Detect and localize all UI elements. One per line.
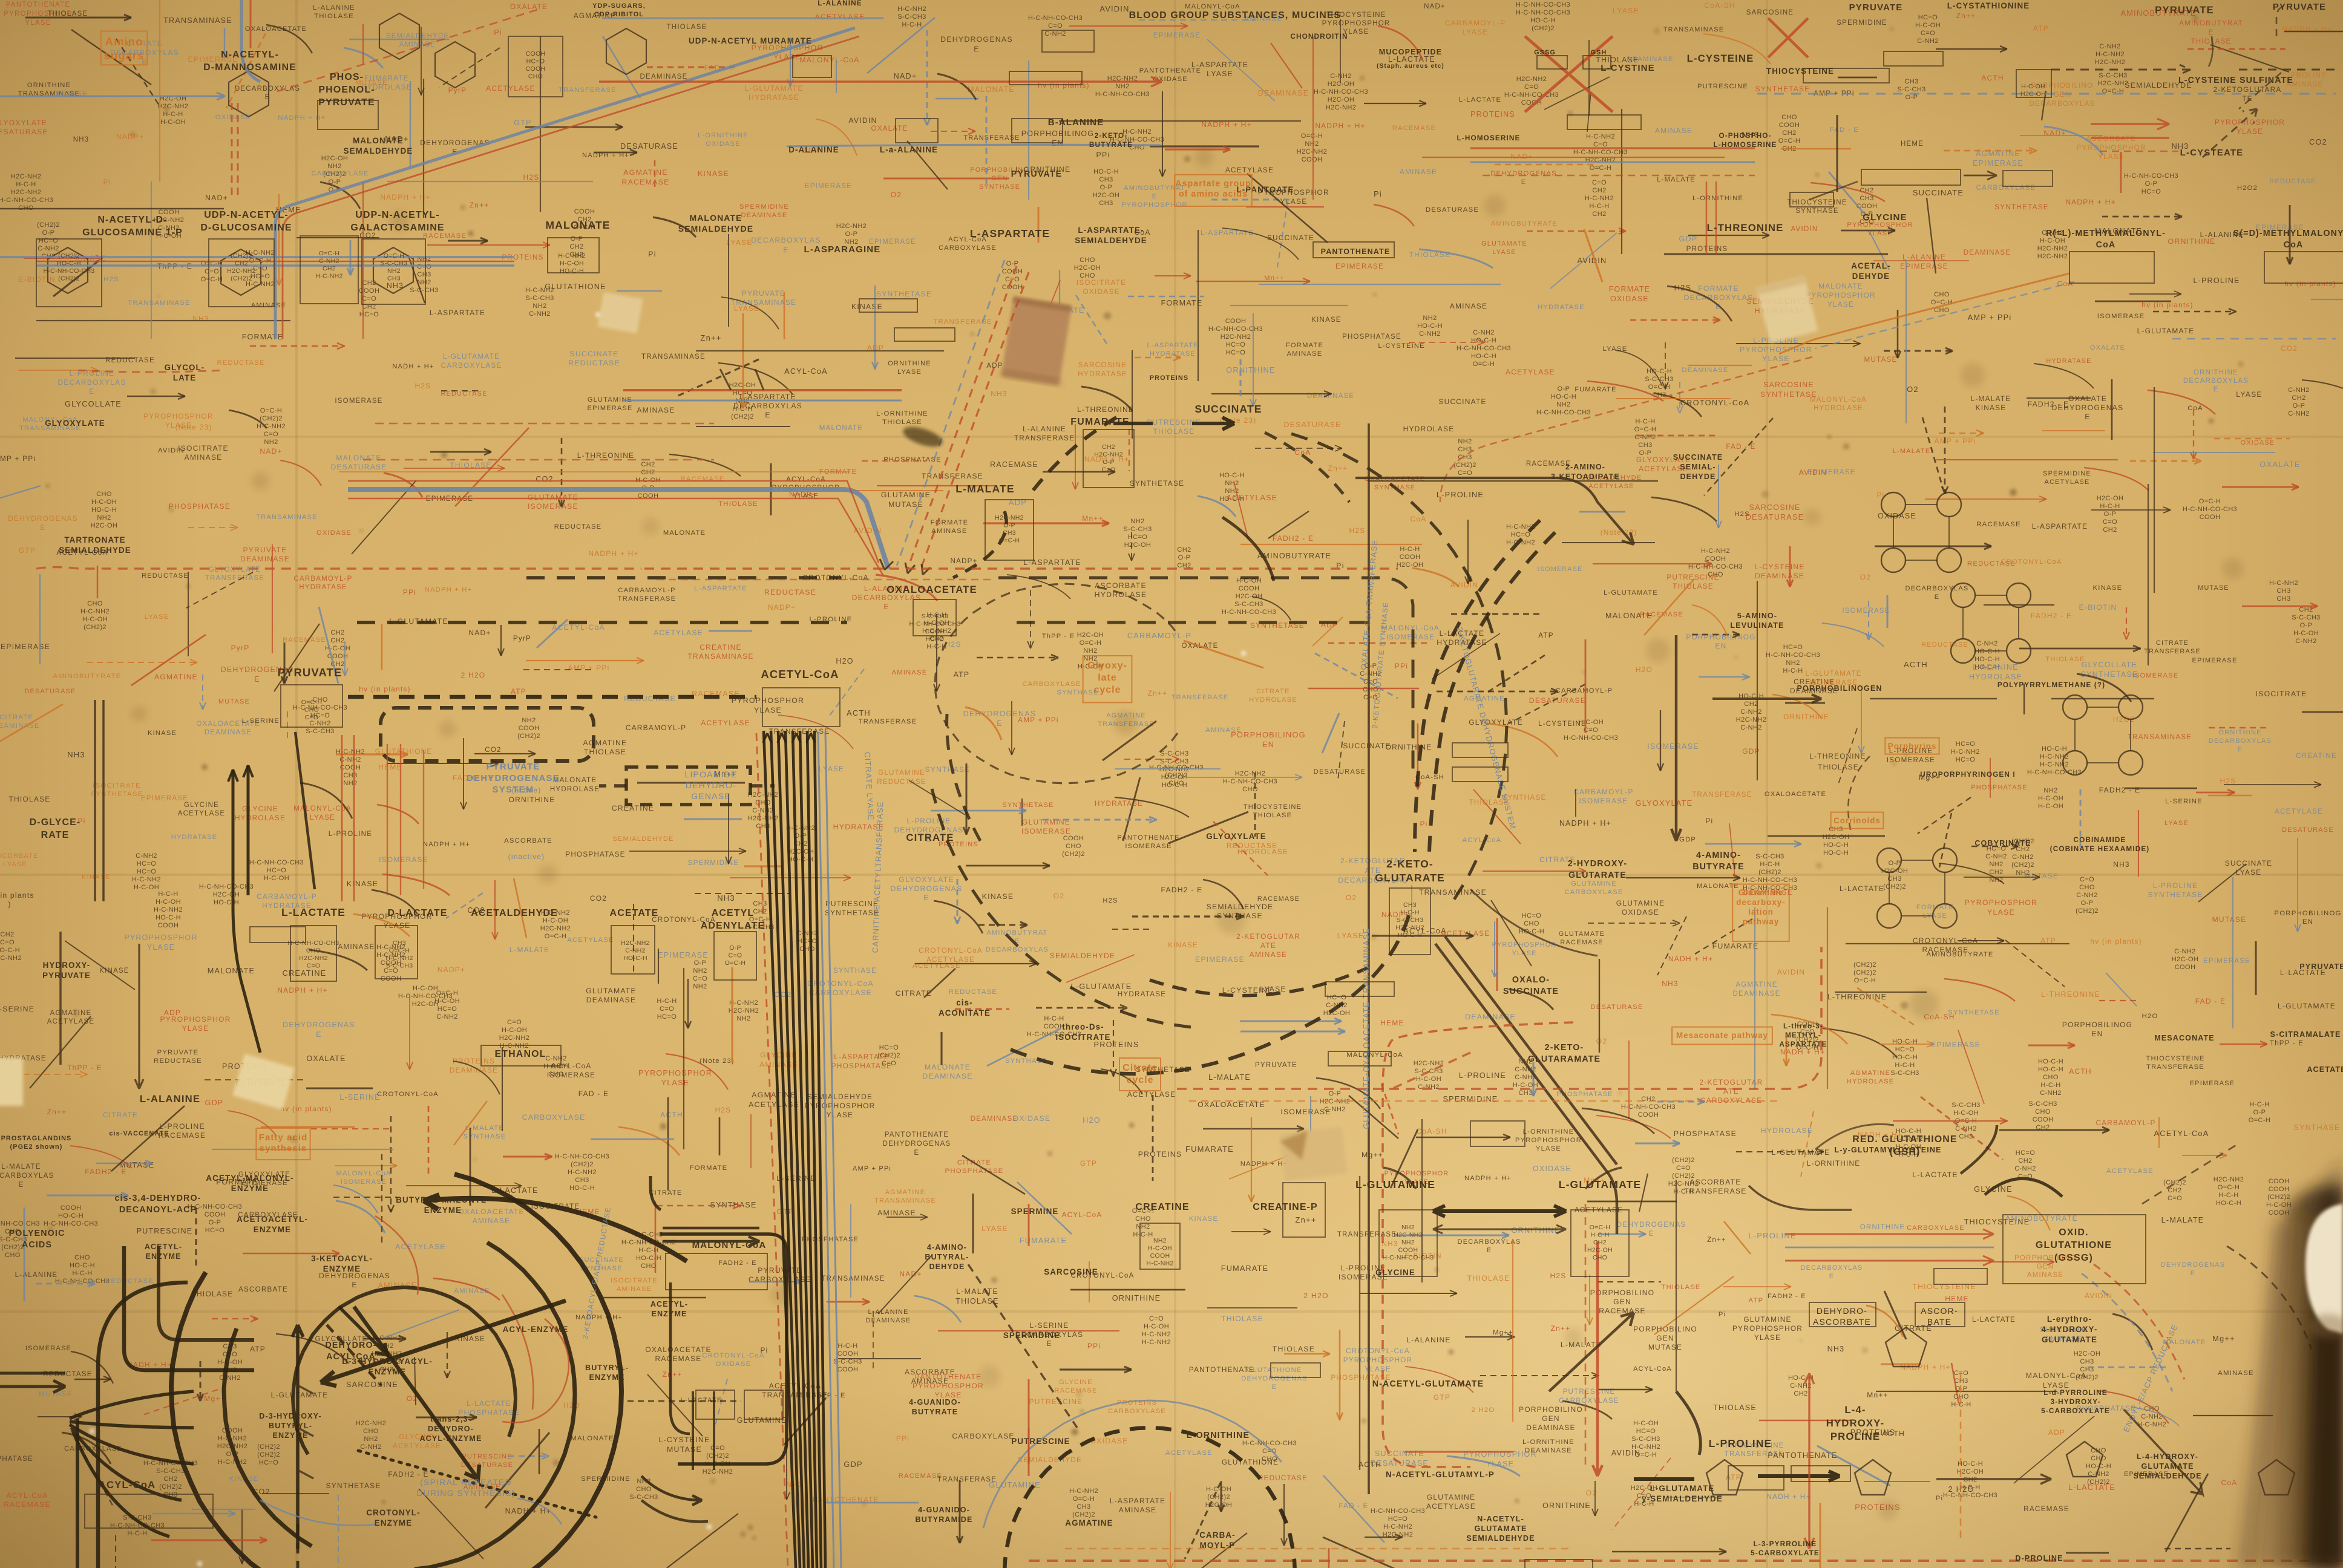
svg-text:C-NH2: C-NH2: [1044, 30, 1066, 38]
svg-text:ISOMERASE: ISOMERASE: [2097, 313, 2145, 320]
svg-text:H-C-H: H-C-H: [2249, 1101, 2269, 1108]
svg-text:NAD+: NAD+: [894, 72, 917, 80]
svg-text:THIOLASE: THIOLASE: [1467, 1274, 1510, 1282]
svg-text:CARBAMOYL-P: CARBAMOYL-P: [2096, 1119, 2155, 1127]
svg-text:H-C-OH: H-C-OH: [1953, 1109, 1979, 1117]
svg-text:TRANSFERASE: TRANSFERASE: [205, 575, 264, 582]
svg-text:POLYPYRRYLMETHANE (?): POLYPYRRYLMETHANE (?): [1997, 681, 2105, 689]
svg-text:CHO: CHO: [1593, 1254, 1607, 1261]
svg-text:GLUTAMATE: GLUTAMATE: [1474, 1524, 1527, 1533]
svg-text:S(=D)-METHYLMALONYL-: S(=D)-METHYLMALONYL-: [2233, 229, 2343, 238]
svg-text:ACETYL-CoA: ACETYL-CoA: [2154, 1129, 2209, 1138]
svg-text:LYASE: LYASE: [1207, 70, 1233, 78]
svg-text:L-PROLINE: L-PROLINE: [329, 830, 373, 838]
svg-text:HO-C-H: HO-C-H: [91, 506, 117, 514]
svg-text:MALONATE: MALONATE: [571, 1435, 614, 1442]
svg-text:L-PROLINE: L-PROLINE: [1709, 1437, 1772, 1449]
svg-text:PORPHOBILINOGEN: PORPHOBILINOGEN: [1797, 684, 1882, 693]
svg-text:EN: EN: [2091, 1030, 2103, 1038]
svg-text:C-NH2: C-NH2: [319, 258, 339, 265]
svg-text:L-GLUTAMATE: L-GLUTAMATE: [1559, 1178, 1642, 1191]
svg-text:GLUTAMATE: GLUTAMATE: [1559, 930, 1605, 938]
svg-text:GLYOXYLATE: GLYOXYLATE: [1469, 718, 1523, 727]
svg-text:TRANSFERASE: TRANSFERASE: [1337, 1231, 1397, 1238]
svg-text:PPi: PPi: [1096, 151, 1110, 159]
svg-text:PYROPHOSPHOR: PYROPHOSPHOR: [124, 933, 197, 942]
svg-text:MALONYL-CoA: MALONYL-CoA: [1381, 624, 1440, 632]
svg-text:C=O: C=O: [1593, 141, 1608, 148]
svg-text:NH3: NH3: [2113, 860, 2129, 869]
svg-text:O2: O2: [1860, 573, 1871, 581]
svg-text:PYRUVATE: PYRUVATE: [742, 289, 785, 298]
svg-text:ACETYLASE: ACETYLASE: [47, 1018, 95, 1025]
svg-text:S-C-CH3: S-C-CH3: [386, 962, 413, 970]
svg-text:2-KETOGLUTAR: 2-KETOGLUTAR: [1236, 932, 1300, 941]
svg-text:O-P: O-P: [571, 235, 583, 243]
svg-text:GTP: GTP: [777, 1207, 794, 1216]
svg-text:O=C-H: O=C-H: [2199, 498, 2221, 505]
svg-text:CoA-SH: CoA-SH: [1704, 1, 1735, 10]
svg-text:(Note 23): (Note 23): [175, 423, 212, 431]
svg-text:L-ASPARAGINE: L-ASPARAGINE: [804, 244, 881, 255]
svg-text:ACETYLASE: ACETYLASE: [567, 936, 614, 944]
svg-text:C-NH2: C-NH2: [136, 852, 157, 860]
svg-text:PyrP: PyrP: [231, 644, 250, 652]
svg-text:H-C-NH-CO-CH3: H-C-NH-CO-CH3: [1208, 325, 1263, 333]
svg-text:H-C-OH: H-C-OH: [2021, 83, 2045, 90]
svg-text:H-C-H: H-C-H: [127, 1530, 147, 1537]
svg-text:KINASE: KINASE: [2093, 584, 2123, 592]
svg-text:H2S: H2S: [1349, 526, 1366, 535]
svg-text:L-THREONINE: L-THREONINE: [1827, 993, 1887, 1001]
svg-text:COOH: COOH: [925, 628, 945, 635]
svg-text:Pi: Pi: [1936, 1495, 1943, 1502]
svg-text:THIOLASE: THIOLASE: [718, 500, 758, 508]
svg-text:E: E: [19, 1181, 24, 1189]
svg-text:H-C-NH-CO-CH3: H-C-NH-CO-CH3: [1314, 88, 1368, 96]
svg-text:L-SERINE: L-SERINE: [2165, 798, 2203, 805]
svg-text:NH2: NH2: [1115, 83, 1129, 90]
svg-text:CH2: CH2: [641, 461, 655, 468]
svg-text:SEMIALDEHYDE: SEMIALDEHYDE: [678, 224, 753, 234]
svg-text:Aspartate group: Aspartate group: [1175, 179, 1251, 189]
svg-text:O-P: O-P: [1906, 94, 1918, 101]
svg-text:H2C-NH2: H2C-NH2: [227, 267, 256, 275]
svg-text:COOH: COOH: [1150, 1252, 1170, 1259]
svg-text:OXIDASE: OXIDASE: [706, 140, 740, 148]
svg-text:C=O: C=O: [362, 295, 376, 302]
svg-text:C-NH2: C-NH2: [529, 310, 551, 318]
svg-text:H-C-H: H-C-H: [2218, 1192, 2238, 1199]
svg-text:NADPH + H+: NADPH + H+: [277, 986, 327, 995]
svg-text:H-C-NH-CO-CH3: H-C-NH-CO-CH3: [1516, 1, 1570, 8]
svg-text:C=O: C=O: [1676, 1165, 1691, 1172]
svg-text:ORNITHINE: ORNITHINE: [1542, 1501, 1591, 1510]
svg-text:C-NH2: C-NH2: [2099, 43, 2121, 50]
svg-text:ACETYL-: ACETYL-: [650, 1300, 688, 1308]
svg-text:REDUCTASE: REDUCTASE: [568, 359, 620, 367]
svg-text:L-GLUTAMATE: L-GLUTAMATE: [2278, 1002, 2336, 1010]
svg-text:O=C-H: O=C-H: [1301, 132, 1323, 140]
svg-text:synthesis: synthesis: [260, 1143, 307, 1154]
svg-text:EN: EN: [2302, 918, 2313, 926]
svg-text:PUTRESCINE: PUTRESCINE: [1029, 1397, 1083, 1406]
svg-text:L-GLUTAMATE: L-GLUTAMATE: [1650, 1484, 1715, 1493]
svg-text:PYRUVATE: PYRUVATE: [1011, 169, 1063, 179]
svg-text:HYDRATASE: HYDRATASE: [299, 584, 347, 591]
svg-text:TRANSFERASE: TRANSFERASE: [618, 595, 677, 603]
svg-text:FADH2 - E: FADH2 - E: [1768, 1293, 1806, 1300]
svg-text:S-C-CH3: S-C-CH3: [1160, 750, 1188, 757]
svg-text:2-KETO-: 2-KETO-: [1095, 131, 1128, 140]
svg-text:THIOLASE: THIOLASE: [1153, 427, 1195, 436]
svg-text:H-C-NH-CO-CH3: H-C-NH-CO-CH3: [288, 939, 339, 947]
svg-text:O2: O2: [1596, 1037, 1607, 1045]
svg-text:DECARBOXYLAS: DECARBOXYLAS: [57, 378, 126, 387]
svg-text:COOH: COOH: [2175, 964, 2196, 971]
svg-text:CITRATE: CITRATE: [1256, 688, 1289, 695]
svg-text:RED. GLUTATHIONE: RED. GLUTATHIONE: [1852, 1134, 1957, 1145]
svg-text:H2C-OH: H2C-OH: [1077, 632, 1104, 639]
svg-text:HC=O: HC=O: [1226, 349, 1246, 356]
svg-text:GLYCINE: GLYCINE: [1375, 1268, 1415, 1277]
svg-text:H2C-NH2: H2C-NH2: [836, 223, 867, 230]
svg-text:EPIMERASE: EPIMERASE: [1973, 159, 2023, 168]
svg-text:CoA: CoA: [2284, 240, 2304, 250]
svg-text:REDUCTASE: REDUCTASE: [142, 572, 189, 580]
svg-text:L-ALANINE: L-ALANINE: [818, 0, 862, 7]
svg-text:ACETYLASE: ACETYLASE: [1588, 483, 1634, 490]
svg-text:COOH: COOH: [837, 1366, 859, 1373]
svg-text:DEHYDROGENAS: DEHYDROGENAS: [883, 1140, 951, 1148]
svg-text:Glutamate: Glutamate: [1738, 888, 1783, 897]
svg-text:CREATINE: CREATINE: [700, 643, 741, 652]
svg-text:NH2: NH2: [693, 967, 707, 975]
svg-text:DECARBOXYLAS: DECARBOXYLAS: [986, 946, 1049, 953]
svg-text:(CH2)2: (CH2)2: [159, 1483, 182, 1491]
svg-text:Mn++: Mn++: [1082, 514, 1104, 523]
svg-text:HO-C-H: HO-C-H: [2038, 1058, 2063, 1065]
svg-text:H-C-H: H-C-H: [1044, 1015, 1064, 1022]
svg-text:KINASE: KINASE: [698, 169, 729, 178]
svg-text:AMINASE: AMINASE: [251, 302, 286, 309]
svg-text:HO-C-H: HO-C-H: [57, 260, 81, 267]
svg-text:H-C-OH: H-C-OH: [134, 884, 159, 891]
svg-text:DEHYDROGENAS: DEHYDROGENAS: [2052, 403, 2124, 412]
svg-text:HC=O: HC=O: [1226, 341, 1246, 348]
svg-text:LYASE: LYASE: [3, 861, 27, 868]
svg-text:O-PHOSPHO-: O-PHOSPHO-: [1719, 131, 1771, 140]
svg-text:NH2: NH2: [1153, 1237, 1167, 1244]
svg-text:GLYCOLLATE: GLYCOLLATE: [2082, 661, 2138, 669]
svg-text:CARBOXYLASE: CARBOXYLASE: [522, 1113, 586, 1122]
svg-text:HO-C-H: HO-C-H: [2038, 1066, 2063, 1073]
svg-text:COBINAMIDE: COBINAMIDE: [2073, 835, 2126, 844]
svg-text:DEAMINASE: DEAMINASE: [1525, 1447, 1572, 1454]
svg-text:H-C-H: H-C-H: [2040, 1082, 2060, 1089]
svg-text:YLASE: YLASE: [1987, 908, 2015, 916]
svg-text:hv (in plants): hv (in plants): [2284, 279, 2336, 288]
svg-text:COOH: COOH: [340, 764, 361, 771]
svg-text:DECARBOXYLAS: DECARBOXYLAS: [235, 85, 300, 93]
svg-text:ThPP - E: ThPP - E: [67, 1063, 102, 1072]
svg-text:ACETYLASE: ACETYLASE: [1426, 1502, 1476, 1511]
svg-text:DEHYDROGENAS: DEHYDROGENAS: [2161, 1261, 2225, 1269]
svg-text:H2C-OH: H2C-OH: [1074, 264, 1101, 272]
svg-text:H-C-OH: H-C-OH: [1148, 1245, 1172, 1252]
svg-text:SYNTHETASE: SYNTHETASE: [1994, 203, 2049, 211]
svg-text:HYDROXY-: HYDROXY-: [43, 961, 91, 970]
svg-text:H2C-NH2: H2C-NH2: [1094, 451, 1123, 459]
svg-text:NH2: NH2: [2043, 787, 2057, 794]
svg-text:NH2: NH2: [364, 1436, 378, 1443]
svg-text:GTP: GTP: [1434, 1393, 1450, 1402]
svg-text:H2S: H2S: [945, 640, 961, 648]
svg-text:ISOCITRATE: ISOCITRATE: [93, 782, 141, 789]
svg-text:ORNITHINE: ORNITHINE: [1226, 365, 1276, 374]
svg-text:C=O: C=O: [1524, 83, 1539, 91]
svg-text:PYROPHOSPHOR: PYROPHOSPHOR: [1492, 941, 1557, 949]
svg-text:CARBOXYLASE: CARBOXYLASE: [1976, 185, 2036, 192]
svg-text:C=O: C=O: [1102, 466, 1116, 474]
svg-text:L-y-GLUTAMYLCYSTEINE: L-y-GLUTAMYLCYSTEINE: [1834, 1146, 1941, 1154]
svg-text:MALONYL-CoA: MALONYL-CoA: [1346, 1051, 1403, 1059]
svg-text:O-P: O-P: [1329, 1090, 1342, 1097]
svg-text:D-3-HYDROXY-: D-3-HYDROXY-: [259, 1412, 321, 1420]
svg-text:KINASE: KINASE: [1168, 942, 1198, 949]
svg-text:PYROPHOSPHOR: PYROPHOSPHOR: [804, 1102, 875, 1110]
svg-text:REDUCTASE: REDUCTASE: [154, 1057, 202, 1065]
svg-text:DECARBOXYLAS: DECARBOXYLAS: [0, 1172, 54, 1180]
svg-text:HYDRATASE: HYDRATASE: [1078, 370, 1127, 378]
svg-text:PUTRESCINE: PUTRESCINE: [1011, 1437, 1070, 1446]
svg-text:(CH2)2: (CH2)2: [571, 1161, 594, 1168]
svg-text:L-ORNITHINE: L-ORNITHINE: [1522, 1439, 1575, 1446]
svg-text:AMINASE: AMINASE: [892, 669, 928, 676]
svg-text:AVIDIN: AVIDIN: [1777, 968, 1805, 976]
svg-text:4-GUANIDO-: 4-GUANIDO-: [909, 1398, 961, 1406]
svg-text:C=O: C=O: [307, 962, 321, 970]
svg-text:L-LACTATE: L-LACTATE: [1459, 96, 1502, 103]
svg-text:PUTRESCINE: PUTRESCINE: [1697, 83, 1748, 90]
svg-text:ACETYLASE: ACETYLASE: [486, 84, 536, 93]
svg-text:ACYL-CoA: ACYL-CoA: [1633, 1365, 1672, 1373]
svg-text:S-C-CH3: S-C-CH3: [306, 728, 334, 735]
svg-text:NH2: NH2: [1989, 861, 2003, 868]
svg-text:D-PROLINE: D-PROLINE: [2015, 1554, 2063, 1563]
svg-text:H-C-OH: H-C-OH: [156, 898, 181, 906]
svg-text:ACETATE: ACETATE: [2307, 1065, 2343, 1074]
svg-text:H-C-H: H-C-H: [837, 1342, 857, 1350]
svg-text:(CH2)2: (CH2)2: [2011, 861, 2034, 869]
svg-text:ACETYLASE: ACETYLASE: [701, 719, 750, 727]
svg-text:N-ACETYL-GLUTAMYL-P: N-ACETYL-GLUTAMYL-P: [1386, 1470, 1495, 1479]
svg-text:H-C-NH-CO-CH3: H-C-NH-CO-CH3: [1222, 609, 1276, 616]
svg-text:3-KETOADIPATE: 3-KETOADIPATE: [1551, 472, 1620, 481]
svg-text:L-d-PYRROLINE: L-d-PYRROLINE: [2043, 1388, 2107, 1397]
svg-text:C=O: C=O: [693, 975, 707, 982]
svg-text:COOH: COOH: [205, 1211, 226, 1218]
svg-text:L-ASPARTATE-: L-ASPARTATE-: [1078, 226, 1144, 235]
svg-text:CH3: CH3: [1403, 901, 1417, 909]
svg-text:DECARBOXYLAS: DECARBOXYLAS: [1457, 1238, 1521, 1246]
svg-text:ISOMERASE: ISOMERASE: [528, 502, 578, 511]
svg-text:ACETYLASE: ACETYLASE: [395, 1243, 446, 1251]
svg-text:L-ASPARTATE: L-ASPARTATE: [1191, 60, 1248, 69]
svg-text:ISOMERASE: ISOMERASE: [1579, 797, 1628, 805]
svg-text:THIOLASE: THIOLASE: [1713, 1403, 1757, 1412]
svg-text:H2O: H2O: [836, 657, 853, 665]
svg-text:H-C-H: H-C-H: [72, 1270, 92, 1277]
svg-text:DESATURASE: DESATURASE: [24, 688, 76, 695]
svg-text:(active): (active): [512, 786, 542, 794]
svg-text:GLUTAMINE: GLUTAMINE: [1743, 1315, 1791, 1324]
svg-text:H-C-NH2: H-C-NH2: [1383, 1523, 1412, 1530]
svg-text:NH3: NH3: [67, 750, 85, 759]
svg-text:ENZYME: ENZYME: [231, 1184, 269, 1193]
svg-text:Zn++: Zn++: [47, 1108, 67, 1116]
svg-text:CoA-SH: CoA-SH: [1416, 1127, 1447, 1135]
svg-text:NADP+: NADP+: [768, 603, 796, 612]
svg-text:4-HYDROXY-: 4-HYDROXY-: [2042, 1325, 2098, 1334]
svg-text:O2: O2: [1907, 385, 1918, 394]
svg-text:GLUTATHIONE: GLUTATHIONE: [1247, 1367, 1302, 1374]
svg-text:AMINASE: AMINASE: [759, 1060, 798, 1069]
svg-text:ISOMERASE: ISOMERASE: [547, 1071, 595, 1079]
svg-text:ASCORBATE: ASCORBATE: [1813, 1317, 1871, 1327]
svg-text:AGMATINE: AGMATINE: [1065, 1518, 1113, 1527]
svg-text:RACEMASE: RACEMASE: [2023, 1504, 2069, 1513]
svg-text:DEHYDROGENAS: DEHYDROGENAS: [1241, 1375, 1308, 1382]
svg-text:EPIMERASE: EPIMERASE: [1931, 1040, 1981, 1049]
svg-text:COOH: COOH: [574, 208, 595, 215]
svg-text:REDUCTASE: REDUCTASE: [949, 988, 997, 996]
svg-text:L-PROLINE: L-PROLINE: [2153, 881, 2198, 890]
svg-text:S-C-CH3: S-C-CH3: [1755, 853, 1784, 860]
svg-text:GDP: GDP: [205, 1099, 224, 1107]
svg-text:SARCOSINE: SARCOSINE: [346, 1380, 398, 1389]
svg-text:HO-C-H: HO-C-H: [214, 899, 239, 906]
svg-text:CH3: CH3: [2080, 1358, 2094, 1365]
svg-text:COOH: COOH: [526, 50, 546, 57]
svg-text:H-C-NH2: H-C-NH2: [897, 5, 926, 13]
svg-text:H-C-NH2: H-C-NH2: [1585, 195, 1614, 202]
svg-text:(Note 23): (Note 23): [700, 1057, 735, 1065]
svg-text:YLASE: YLASE: [182, 1024, 209, 1033]
svg-text:H-C-NH2: H-C-NH2: [315, 273, 342, 280]
svg-text:E: E: [89, 387, 94, 396]
svg-text:2-KETO-: 2-KETO-: [1386, 858, 1434, 870]
svg-text:NAD+: NAD+: [205, 194, 228, 202]
svg-text:H2C-NH2: H2C-NH2: [1394, 1232, 1423, 1239]
svg-text:Pi: Pi: [103, 178, 111, 186]
svg-text:OXALOACETATE: OXALOACETATE: [645, 1345, 711, 1354]
svg-text:SYNTHETASE: SYNTHETASE: [90, 791, 143, 798]
svg-text:H-C-H: H-C-H: [16, 181, 36, 188]
svg-text:OXALATE: OXALATE: [2259, 460, 2300, 469]
svg-text:(inactive): (inactive): [508, 852, 545, 861]
svg-text:NH2: NH2: [1556, 401, 1570, 408]
svg-text:L-CYSTEINE: L-CYSTEINE: [1754, 563, 1804, 571]
svg-text:H2S: H2S: [415, 382, 431, 390]
svg-text:HYDROLASE: HYDROLASE: [1237, 848, 1288, 856]
svg-text:GLUCOSAMINE 1-P: GLUCOSAMINE 1-P: [82, 227, 183, 238]
svg-text:PANTOTHENATE: PANTOTHENATE: [1189, 1365, 1254, 1374]
svg-text:O=C-H: O=C-H: [1634, 426, 1657, 433]
svg-text:(CH2)2: (CH2)2: [1207, 1494, 1230, 1501]
svg-text:E: E: [1046, 1339, 1052, 1348]
svg-text:GLYCOLLATE: GLYCOLLATE: [65, 399, 122, 408]
svg-text:H-C-NH-CO-CH3: H-C-NH-CO-CH3: [1536, 409, 1591, 416]
svg-text:SYNTHETASE: SYNTHETASE: [2080, 670, 2138, 679]
svg-text:HO-C-H: HO-C-H: [1823, 849, 1849, 857]
svg-text:DESATURASE: DESATURASE: [1529, 696, 1586, 705]
svg-text:HYDRATASE: HYDRATASE: [1150, 350, 1196, 358]
svg-text:H-C-OH: H-C-OH: [217, 1359, 243, 1366]
svg-text:decarboxy-: decarboxy-: [1736, 898, 1785, 907]
svg-text:CH2: CH2: [1177, 546, 1191, 554]
svg-text:FORMATE: FORMATE: [1286, 342, 1323, 349]
svg-text:FUMARATE: FUMARATE: [1221, 1264, 1268, 1273]
svg-text:HC=O: HC=O: [437, 1005, 457, 1013]
svg-text:ACETYLASE: ACETYLASE: [815, 13, 865, 21]
svg-text:DESATURASE: DESATURASE: [0, 128, 48, 136]
svg-text:H2S: H2S: [523, 173, 540, 181]
svg-text:H2O: H2O: [1636, 665, 1653, 674]
svg-text:GEN: GEN: [2037, 1263, 2054, 1270]
svg-text:late: late: [1098, 673, 1117, 683]
svg-text:ISOMERASE: ISOMERASE: [1538, 566, 1583, 573]
svg-text:CH2: CH2: [330, 629, 344, 636]
svg-text:HYDRATASE: HYDRATASE: [171, 834, 217, 841]
svg-text:THIOCYSTEINE: THIOCYSTEINE: [2146, 1055, 2204, 1062]
svg-text:D-ALANINE: D-ALANINE: [788, 145, 839, 154]
svg-text:CH2: CH2: [1592, 187, 1606, 194]
svg-text:H-C-OH: H-C-OH: [1144, 1323, 1169, 1330]
svg-text:KINASE: KINASE: [82, 874, 111, 881]
svg-text:ACETAL-: ACETAL-: [1851, 261, 1890, 270]
svg-text:CH3: CH3: [2276, 587, 2290, 595]
svg-text:EPIMERASE: EPIMERASE: [141, 794, 188, 802]
svg-text:CROTONYL-CoA: CROTONYL-CoA: [1346, 1347, 1410, 1355]
svg-text:AMINASE: AMINASE: [877, 1209, 916, 1217]
svg-text:NADPH + H+: NADPH + H+: [588, 549, 638, 558]
svg-text:H-C-NH2: H-C-NH2: [1631, 1443, 1660, 1451]
svg-text:ACIDS: ACIDS: [22, 1240, 52, 1250]
svg-text:FORMATE: FORMATE: [242, 333, 284, 341]
svg-text:GLUTAMATE-OXALOACETATE TRANSAM: GLUTAMATE-OXALOACETATE TRANSAMINASE: [1362, 928, 1371, 1129]
svg-text:ACYL-ENZYME: ACYL-ENZYME: [419, 1434, 482, 1443]
svg-text:HC=O: HC=O: [1783, 644, 1803, 651]
svg-text:NADH + H+: NADH + H+: [1766, 1492, 1810, 1501]
svg-text:ATP: ATP: [511, 687, 526, 696]
svg-text:L-ASPARTATE: L-ASPARTATE: [430, 309, 485, 317]
svg-text:PORPHOBILINOG: PORPHOBILINOG: [1231, 730, 1306, 739]
svg-text:Zn++: Zn++: [1296, 1215, 1317, 1224]
svg-text:ThPP - E: ThPP - E: [1042, 633, 1075, 640]
svg-text:S-C-CH3: S-C-CH3: [1890, 1070, 1919, 1077]
svg-text:H2O: H2O: [2141, 1013, 2158, 1020]
svg-text:SYNTHETASE: SYNTHETASE: [1002, 802, 1054, 809]
svg-text:GTP: GTP: [19, 546, 36, 555]
svg-text:C-NH2: C-NH2: [2076, 892, 2098, 899]
svg-text:ENZYME: ENZYME: [651, 1310, 687, 1318]
svg-text:NADP+: NADP+: [951, 557, 978, 565]
svg-text:CHO: CHO: [755, 799, 771, 806]
svg-text:PYROPHOSPHOR: PYROPHOSPHOR: [160, 1015, 231, 1024]
svg-text:YLASE: YLASE: [773, 53, 801, 61]
svg-text:SUCCINATE: SUCCINATE: [1913, 188, 1964, 197]
